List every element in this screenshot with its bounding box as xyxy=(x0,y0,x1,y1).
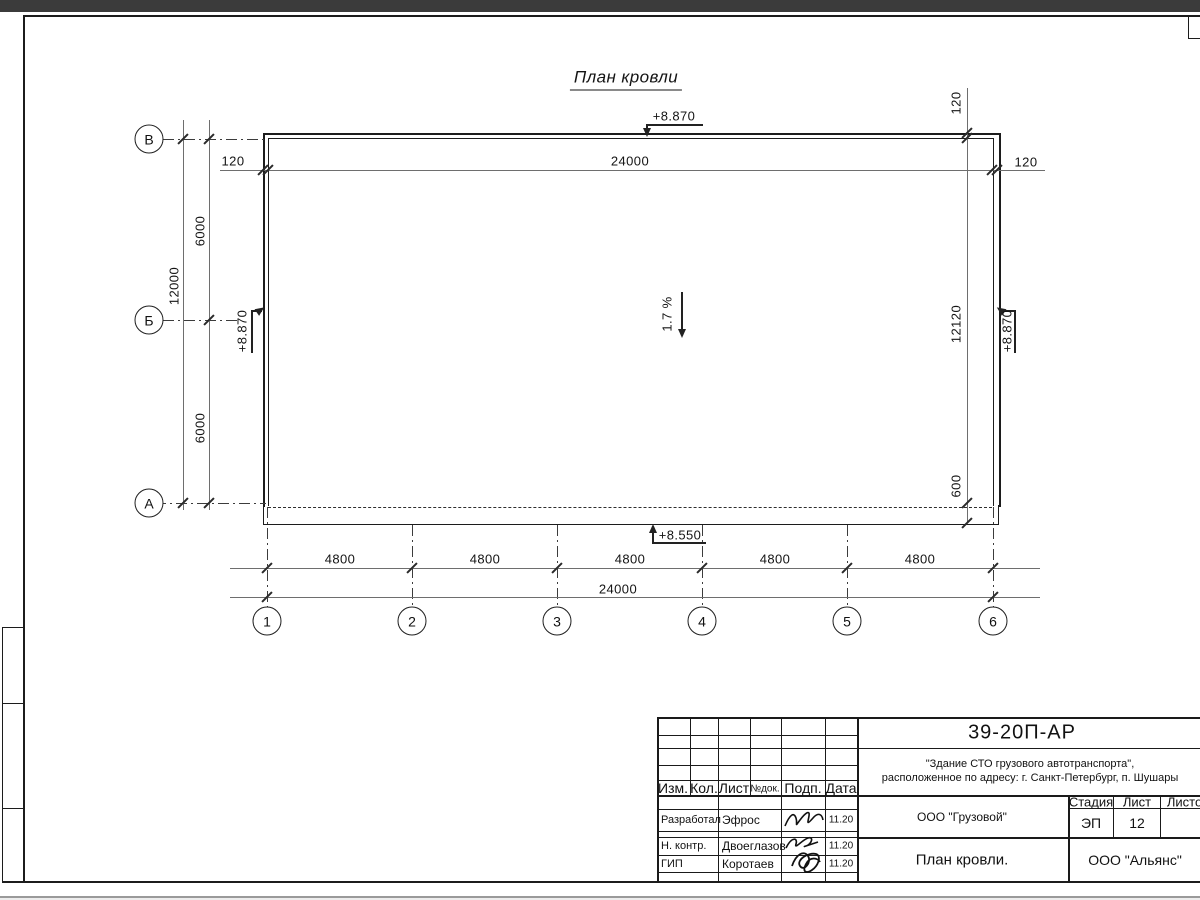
axis-circle-6: 6 xyxy=(979,607,1008,636)
tb-stage-value: ЭП xyxy=(1081,815,1101,831)
axis-line-b-row xyxy=(163,320,240,321)
dim-bottom-seg3: 4800 xyxy=(615,552,646,567)
tb-vline xyxy=(1160,795,1161,838)
tb-project-line1: "Здание СТО грузового автотранспорта", xyxy=(926,758,1135,770)
slope-arrow-line xyxy=(681,292,683,330)
tb-col-data: Дата xyxy=(825,780,856,796)
dim-offset-top-left: 120 xyxy=(222,154,245,169)
axis-label-4: 4 xyxy=(698,613,706,629)
dim-line-bottom-1 xyxy=(230,568,1040,569)
frame-top xyxy=(23,15,1200,17)
elev-left-value: +8.870 xyxy=(235,310,250,353)
frame-left xyxy=(23,15,25,883)
roof-outline-inner xyxy=(268,138,994,506)
corner-stamp-left xyxy=(1188,17,1189,38)
dim-bottom-total: 24000 xyxy=(599,582,637,597)
frame-left-box-div3 xyxy=(2,808,24,809)
dim-bottom-seg2: 4800 xyxy=(470,552,501,567)
tb-date-1: 11.20 xyxy=(829,815,853,826)
tb-hline xyxy=(857,837,1200,839)
elev-bottom-arrow-icon xyxy=(649,524,657,533)
axis-label-b: Б xyxy=(144,312,153,328)
dim-line-bottom-2 xyxy=(230,597,1040,598)
axis-label-v: В xyxy=(144,131,153,147)
axis-label-6: 6 xyxy=(989,613,997,629)
elev-top-value: +8.870 xyxy=(653,109,696,124)
axis-line-v-row xyxy=(163,139,266,140)
dim-left-seg2: 6000 xyxy=(193,413,208,444)
tb-col-list: Лист xyxy=(719,780,749,796)
dim-line-top xyxy=(220,170,1045,171)
tb-sheets-label: Листов xyxy=(1167,795,1200,810)
tb-hline xyxy=(657,735,857,736)
signature-1 xyxy=(782,806,826,832)
elev-top-arrow-icon xyxy=(643,128,651,137)
axis-label-a: А xyxy=(144,495,153,511)
tb-sheet-label: Лист xyxy=(1123,795,1151,810)
dim-right-height: 12120 xyxy=(949,305,964,343)
drawing-sheet: План кровли 1.7 % В Б А 1 2 3 4 5 6 2400… xyxy=(0,0,1200,900)
tb-hline xyxy=(657,809,857,810)
frame-left-box-div2 xyxy=(2,703,24,704)
tb-doc-number: 39-20П-АР xyxy=(968,722,1076,745)
axis-circle-a: А xyxy=(135,489,164,518)
dim-right-offset: 120 xyxy=(949,92,964,115)
axis-circle-2: 2 xyxy=(398,607,427,636)
tb-col-podp: Подп. xyxy=(784,780,821,796)
elev-right-value: +8.870 xyxy=(1000,310,1015,353)
dim-line-left-outer xyxy=(183,120,184,510)
elev-bottom-value: +8.550 xyxy=(659,528,702,543)
axis-label-5: 5 xyxy=(843,613,851,629)
tb-name-1: Эфрос xyxy=(722,813,760,827)
frame-left-box-div1 xyxy=(2,627,24,628)
drawing-title: План кровли xyxy=(570,68,682,91)
dim-bottom-seg1: 4800 xyxy=(325,552,356,567)
axis-label-2: 2 xyxy=(408,613,416,629)
tb-vline xyxy=(718,717,719,883)
tb-col-kol: Кол. xyxy=(690,780,718,796)
tb-role-2: Н. контр. xyxy=(661,840,706,852)
axis-circle-b: Б xyxy=(135,306,164,335)
axis-line-col6 xyxy=(993,507,994,607)
tb-col-izm: Изм. xyxy=(658,780,688,796)
tb-hline xyxy=(657,748,857,749)
axis-circle-3: 3 xyxy=(543,607,572,636)
tb-vline xyxy=(857,717,859,883)
tb-stage-label: Стадия xyxy=(1069,795,1113,810)
dim-right-overhang: 600 xyxy=(949,475,964,498)
signature-2 xyxy=(782,832,830,878)
tb-project-line2: расположенное по адресу: г. Санкт-Петерб… xyxy=(882,772,1178,784)
dim-offset-top-right: 120 xyxy=(1015,155,1038,170)
top-dark-bar xyxy=(0,0,1200,12)
slope-label: 1.7 % xyxy=(660,296,675,331)
axis-circle-1: 1 xyxy=(253,607,282,636)
tb-name-3: Коротаев xyxy=(722,857,774,871)
corner-stamp-bottom xyxy=(1188,38,1200,39)
elev-top-shelf xyxy=(646,124,703,126)
tb-drawing-name: План кровли. xyxy=(916,852,1009,869)
tb-org1: ООО "Грузовой" xyxy=(917,810,1007,824)
dim-bottom-seg4: 4800 xyxy=(760,552,791,567)
tb-role-1: Разработал xyxy=(661,814,721,826)
tb-hline xyxy=(657,765,857,766)
axis-circle-5: 5 xyxy=(833,607,862,636)
frame-left-outer xyxy=(2,627,3,883)
dim-line-left-inner xyxy=(209,120,210,510)
frame-bottom xyxy=(2,881,1200,883)
dim-left-total: 12000 xyxy=(167,267,182,305)
dim-line-right xyxy=(967,88,968,523)
axis-circle-4: 4 xyxy=(688,607,717,636)
tb-outer-top xyxy=(657,717,1200,719)
tb-name-2: Двоеглазов xyxy=(722,839,786,853)
axis-circle-v: В xyxy=(135,125,164,154)
tb-sheet-value: 12 xyxy=(1129,815,1145,831)
dim-left-seg1: 6000 xyxy=(193,216,208,247)
axis-line-col1 xyxy=(267,507,268,607)
axis-line-a-row xyxy=(155,503,266,504)
axis-label-3: 3 xyxy=(553,613,561,629)
tb-date-2: 11.20 xyxy=(829,841,853,852)
dim-top-total: 24000 xyxy=(611,154,649,169)
tb-col-ndok: №док. xyxy=(750,784,779,795)
axis-label-1: 1 xyxy=(263,613,271,629)
tb-outer-left xyxy=(657,717,659,883)
roof-eave xyxy=(263,505,999,525)
tb-org2: ООО "Альянс" xyxy=(1088,852,1182,868)
slope-arrow-head-icon xyxy=(678,329,686,338)
elev-left-shelf xyxy=(251,310,253,353)
tb-hline xyxy=(857,748,1200,749)
tb-role-3: ГИП xyxy=(661,858,683,870)
dim-bottom-seg5: 4800 xyxy=(905,552,936,567)
tb-date-3: 11.20 xyxy=(829,859,853,870)
